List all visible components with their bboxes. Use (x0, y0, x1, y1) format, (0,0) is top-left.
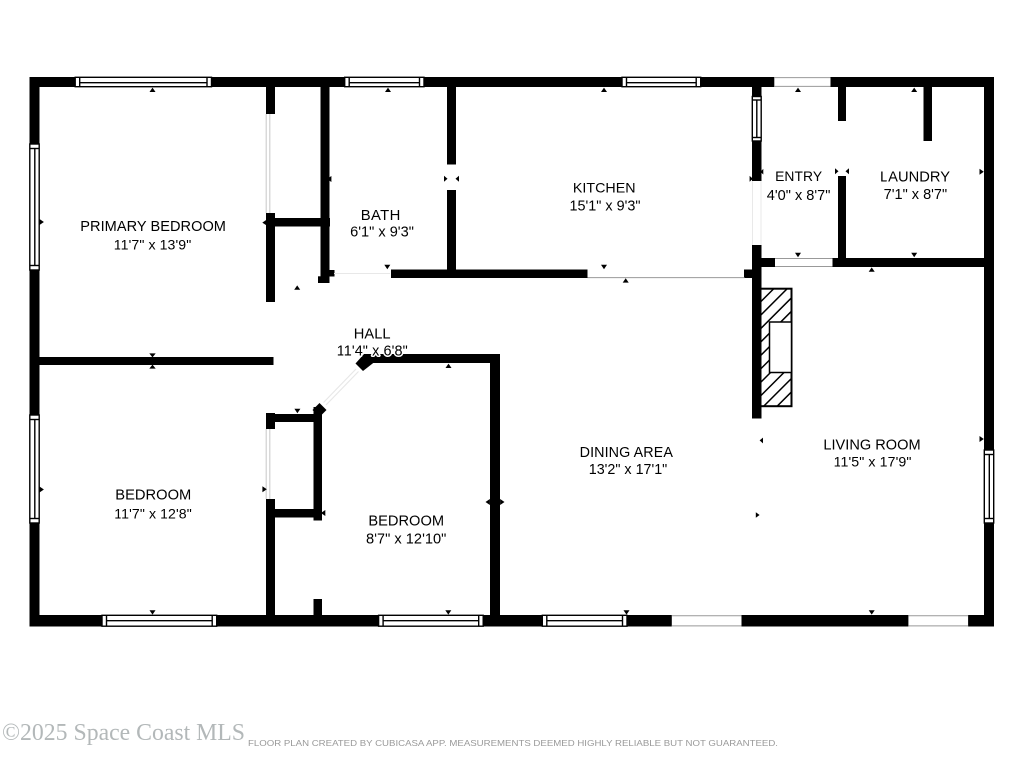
svg-text:11'7" x 13'9": 11'7" x 13'9" (114, 236, 192, 252)
svg-text:PRIMARY BEDROOM: PRIMARY BEDROOM (80, 219, 226, 235)
svg-text:LIVING ROOM: LIVING ROOM (823, 437, 920, 453)
svg-text:BATH: BATH (361, 208, 401, 224)
svg-text:FLOOR PLAN CREATED BY CUBICASA: FLOOR PLAN CREATED BY CUBICASA APP. MEAS… (248, 739, 778, 748)
svg-text:HALL: HALL (354, 326, 391, 342)
svg-text:BEDROOM: BEDROOM (115, 488, 191, 504)
svg-text:©2025 Space Coast MLS: ©2025 Space Coast MLS (2, 720, 245, 746)
svg-text:LAUNDRY: LAUNDRY (880, 169, 950, 185)
svg-text:8'7" x 12'10": 8'7" x 12'10" (366, 532, 446, 548)
svg-text:11'4" x 6'8": 11'4" x 6'8" (337, 344, 408, 360)
svg-text:DINING AREA: DINING AREA (580, 445, 674, 461)
svg-text:BEDROOM: BEDROOM (368, 513, 444, 529)
svg-text:13'2" x 17'1": 13'2" x 17'1" (589, 462, 668, 478)
svg-text:11'7" x 12'8": 11'7" x 12'8" (114, 505, 192, 521)
svg-text:6'1" x 9'3": 6'1" x 9'3" (350, 225, 414, 241)
svg-text:ENTRY: ENTRY (775, 168, 822, 184)
svg-text:KITCHEN: KITCHEN (573, 181, 636, 197)
svg-text:11'5" x 17'9": 11'5" x 17'9" (834, 455, 912, 471)
svg-text:4'0" x 8'7": 4'0" x 8'7" (767, 188, 831, 204)
svg-text:7'1" x 8'7": 7'1" x 8'7" (884, 187, 948, 203)
svg-text:15'1" x 9'3": 15'1" x 9'3" (570, 199, 641, 215)
